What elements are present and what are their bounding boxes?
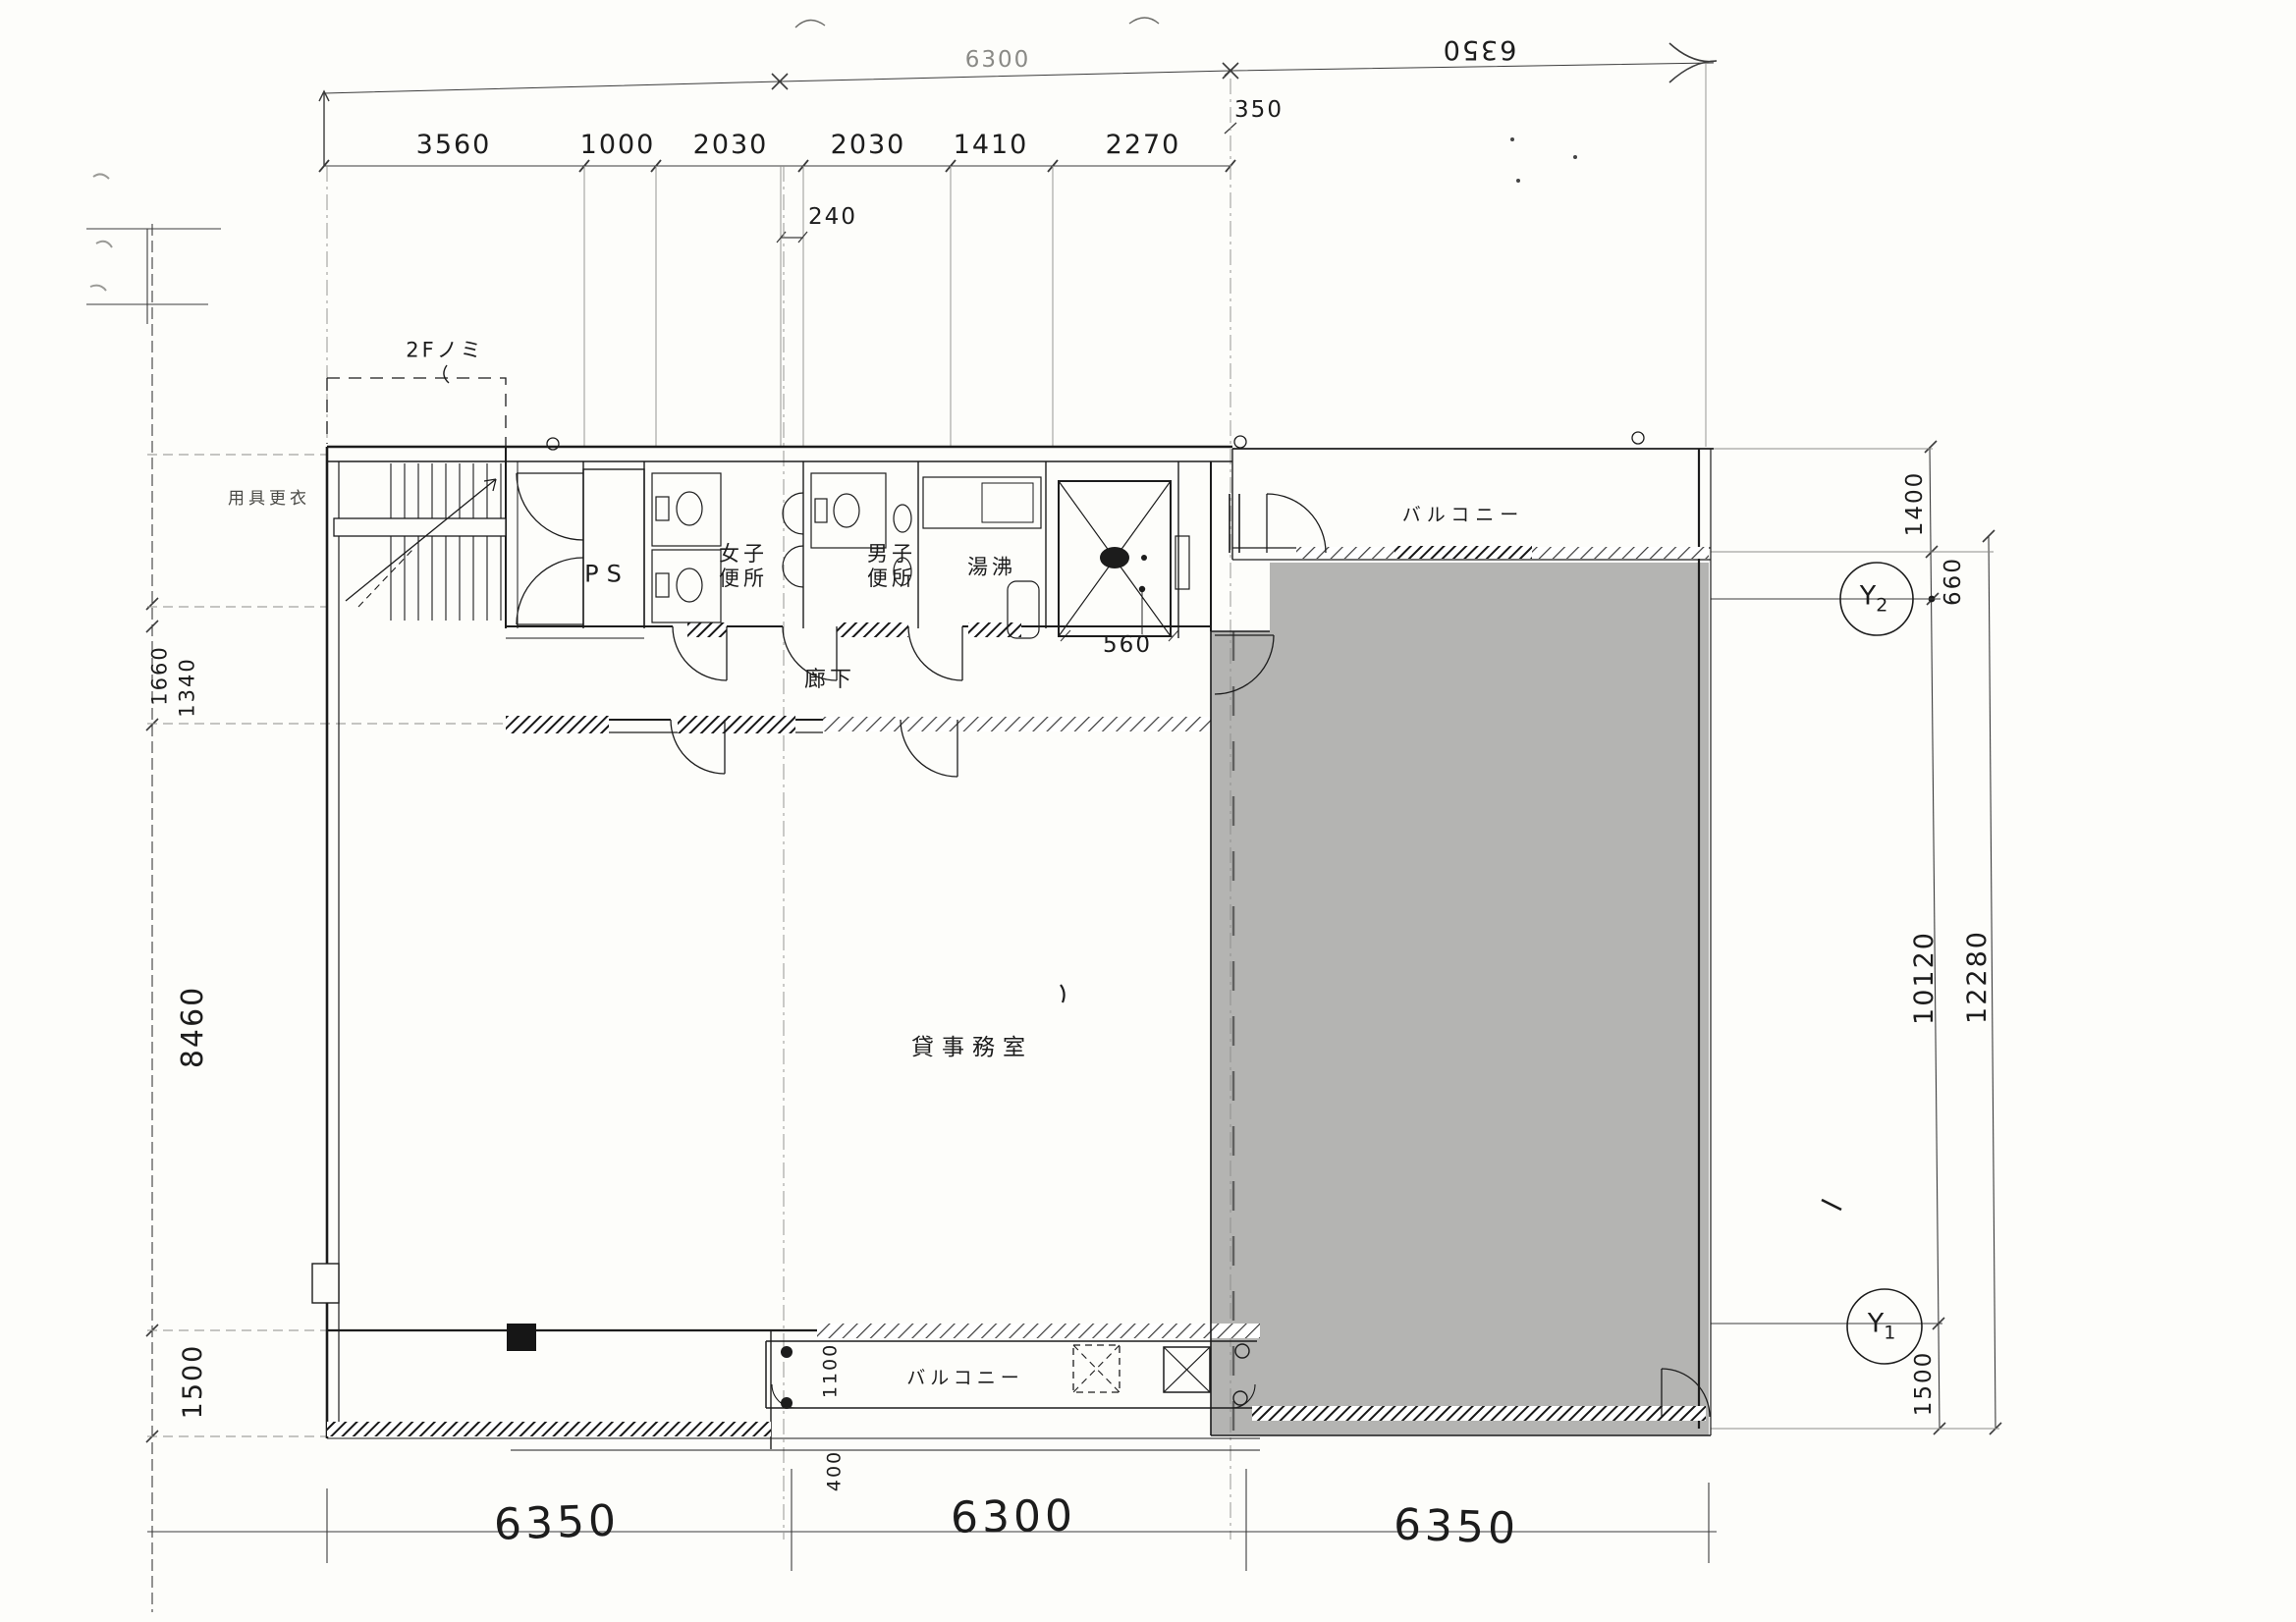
dim-top-1410: 1410	[954, 130, 1029, 161]
room-label-womens-toilet: 女子 便所	[719, 542, 768, 591]
dim-left-1660: 1660	[147, 645, 172, 705]
dim-right-12280: 12280	[1962, 930, 1994, 1024]
dim-bottom-6350-right: 6350	[1393, 1499, 1520, 1555]
shaded-region	[1211, 563, 1709, 1435]
dim-right-1500: 1500	[1911, 1351, 1939, 1417]
dim-top-2030-b: 2030	[831, 130, 906, 161]
dim-left-1340: 1340	[175, 657, 199, 717]
dim-right-1400: 1400	[1902, 471, 1930, 537]
grid-label-y2-letter: Y	[1860, 581, 1877, 612]
floor-plan-sheet: 3560 1000 2030 2030 1410 2270 240 350 63…	[0, 0, 2296, 1622]
dim-right-660: 660	[1941, 557, 1968, 606]
dim-top-2030-a: 2030	[693, 130, 769, 161]
room-label-storage: 用具更衣	[228, 489, 310, 509]
room-label-balcony-top: バルコニー	[1402, 505, 1525, 527]
dim-sub-560: 560	[1103, 632, 1152, 660]
dim-sub-350: 350	[1234, 97, 1284, 125]
dim-top-2270: 2270	[1106, 130, 1181, 161]
room-label-corridor: 廊下	[804, 668, 855, 693]
note-second-floor-only: 2Fノミ	[406, 338, 483, 362]
grid-label-y1: Y1	[1868, 1309, 1896, 1345]
room-label-office: 貸事務室	[911, 1035, 1033, 1062]
dim-top-overall-6300: 6300	[965, 47, 1031, 75]
dim-balcony-400: 400	[824, 1450, 847, 1491]
staircase	[334, 463, 506, 621]
dim-bottom-6350-left: 6350	[493, 1495, 621, 1551]
room-label-pipe-shaft: PS	[584, 561, 629, 589]
grid-label-y1-letter: Y	[1868, 1309, 1885, 1339]
dim-top-overall-6350: 6350	[1442, 33, 1517, 65]
dim-balcony-1100: 1100	[820, 1343, 843, 1398]
second-floor-only-outline	[327, 378, 506, 447]
dim-left-1500: 1500	[178, 1344, 209, 1420]
dim-top-1000: 1000	[580, 130, 656, 161]
grid-label-y2: Y2	[1860, 581, 1888, 618]
dim-bottom-6300: 6300	[951, 1490, 1077, 1544]
dim-sub-240: 240	[808, 204, 857, 232]
dim-top-3560: 3560	[416, 130, 492, 161]
grid-label-y2-index: 2	[1876, 595, 1887, 617]
dim-right-10120: 10120	[1909, 931, 1941, 1025]
grid-label-y1-index: 1	[1884, 1323, 1895, 1344]
room-label-kitchenette: 湯沸	[967, 555, 1016, 579]
room-label-balcony-bottom: バルコニー	[906, 1368, 1024, 1390]
plan-linework	[0, 0, 2296, 1622]
dim-left-8460: 8460	[176, 986, 211, 1068]
room-label-mens-toilet: 男子 便所	[867, 542, 916, 591]
